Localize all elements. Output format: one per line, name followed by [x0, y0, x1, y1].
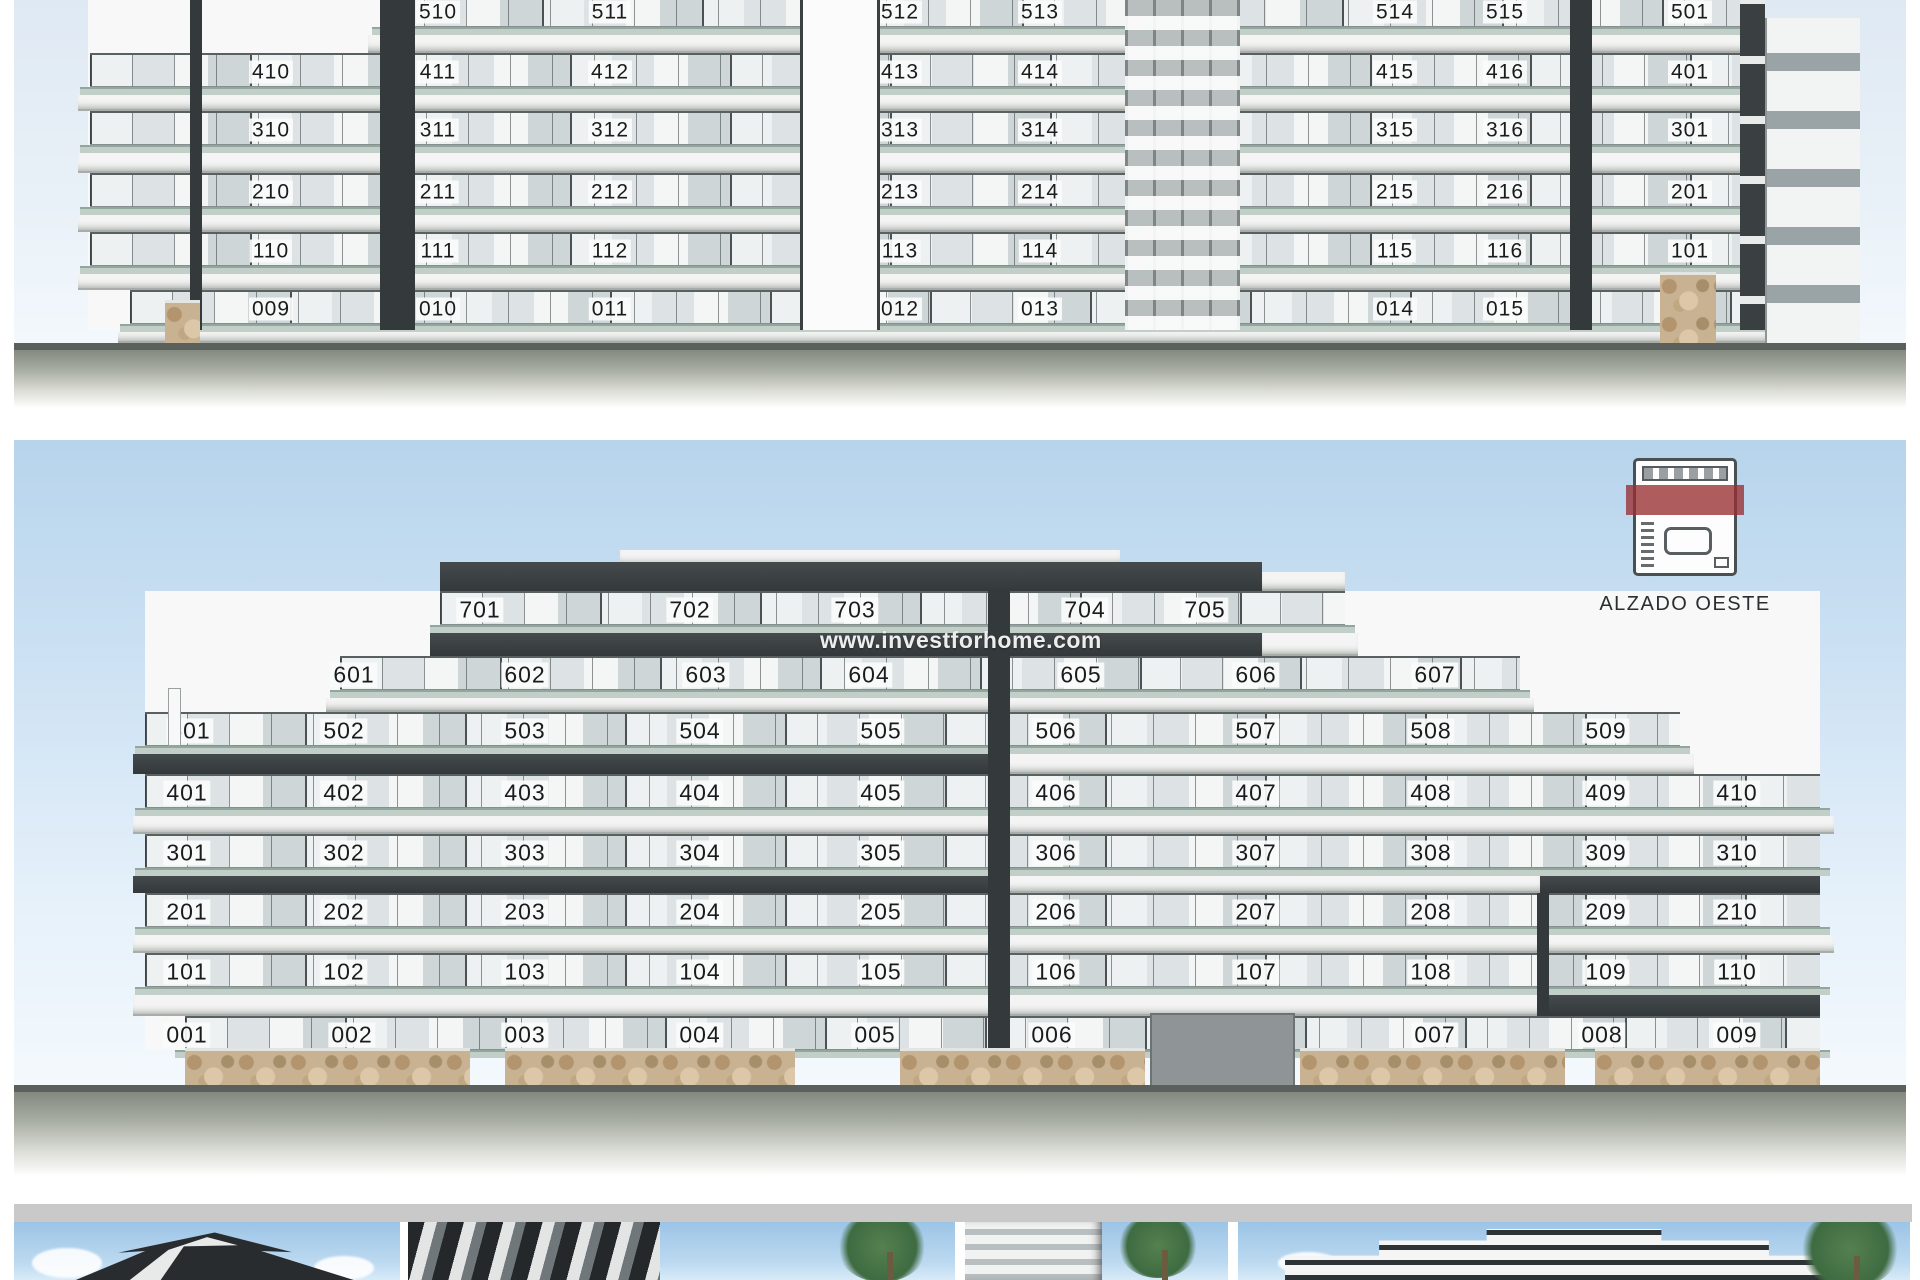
unit-number-label: 604	[845, 663, 892, 688]
unit-number-label: 111	[418, 240, 459, 263]
balcony-slab	[78, 95, 1779, 111]
stone-base	[1595, 1048, 1820, 1088]
unit-number-label: 407	[1232, 781, 1279, 806]
unit-number-label: 212	[588, 181, 632, 204]
unit-number-label: 504	[676, 719, 723, 744]
unit-number-label: 009	[1713, 1023, 1760, 1048]
unit-number-label: 012	[878, 298, 922, 321]
unit-number-label: 401	[163, 781, 210, 806]
thumbnail-divider-band	[14, 1204, 1912, 1222]
balcony-rail	[80, 266, 1775, 274]
unit-number-label: 306	[1032, 841, 1079, 866]
stone-pier	[1660, 272, 1716, 343]
architectural-elevation-sheet: 5105115125135145155014104114124134144154…	[0, 0, 1920, 1280]
unit-number-label: 112	[589, 240, 631, 263]
unit-number-label: 214	[1018, 181, 1062, 204]
unit-number-label: 406	[1032, 781, 1079, 806]
dark-fascia-band	[1540, 876, 1820, 893]
balcony-slab	[1262, 633, 1358, 656]
balcony-rail	[120, 324, 1775, 332]
block-pier	[1537, 893, 1549, 1016]
right-annex	[1765, 18, 1860, 343]
unit-number-label: 508	[1407, 719, 1454, 744]
unit-number-label: 301	[163, 841, 210, 866]
unit-number-label: 108	[1407, 960, 1454, 985]
unit-number-label: 311	[417, 119, 459, 142]
balcony-slab	[326, 698, 1534, 712]
unit-number-label: 110	[250, 240, 292, 263]
unit-number-label: 703	[831, 598, 878, 623]
unit-number-label: 110	[1714, 960, 1760, 985]
stone-base	[185, 1048, 470, 1088]
unit-number-label: 008	[1578, 1023, 1625, 1048]
unit-number-label: 109	[1582, 960, 1629, 985]
window-strip	[145, 953, 1820, 987]
balcony-rail	[135, 927, 1830, 935]
balcony-rail	[135, 868, 1830, 876]
unit-number-label: 216	[1483, 181, 1527, 204]
unit-number-label: 113	[879, 240, 921, 263]
unit-number-label: 408	[1407, 781, 1454, 806]
top-stair-tower-wall	[90, 0, 380, 54]
service-core	[1125, 0, 1240, 330]
balcony-slab	[78, 274, 1779, 290]
dark-pier	[380, 0, 415, 330]
unit-number-label: 314	[1018, 119, 1062, 142]
window-strip	[145, 893, 1820, 927]
dark-pier	[1570, 0, 1592, 330]
roof-fascia	[440, 562, 1262, 592]
balcony-rail	[330, 690, 1530, 698]
unit-number-label: 503	[501, 719, 548, 744]
thumbnail-render-3[interactable]	[965, 1222, 1228, 1280]
thumbnail-render-1[interactable]	[14, 1222, 400, 1280]
unit-number-label: 303	[501, 841, 548, 866]
unit-number-label: 210	[249, 181, 293, 204]
palm-tree	[837, 1222, 927, 1280]
balcony-rail	[80, 145, 1775, 153]
unit-number-label: 209	[1582, 900, 1629, 925]
unit-number-label: 405	[857, 781, 904, 806]
unit-number-label: 514	[1373, 1, 1417, 24]
thumbnail-render-4[interactable]	[1238, 1222, 1910, 1280]
window-strip	[145, 834, 1820, 868]
balcony-closeup	[408, 1222, 660, 1280]
stone-base	[505, 1048, 795, 1088]
unit-number-label: 415	[1373, 61, 1417, 84]
unit-number-label: 410	[249, 61, 293, 84]
balcony-slab	[78, 153, 1779, 173]
unit-number-label: 704	[1061, 598, 1108, 623]
plan-balcony-teeth	[1642, 466, 1728, 481]
balcony-slab	[133, 995, 1540, 1016]
stair-core	[800, 0, 880, 330]
unit-number-label: 301	[1668, 119, 1712, 142]
unit-number-label: 201	[1668, 181, 1712, 204]
unit-number-label: 402	[320, 781, 367, 806]
unit-number-label: 607	[1411, 663, 1458, 688]
unit-number-label: 104	[676, 960, 723, 985]
unit-number-label: 003	[501, 1023, 548, 1048]
unit-number-label: 102	[320, 960, 367, 985]
balcony-slab	[133, 935, 1540, 953]
stone-pier	[165, 300, 200, 343]
unit-number-label: 213	[878, 181, 922, 204]
window-strip	[145, 774, 1820, 808]
unit-number-label: 410	[1713, 781, 1760, 806]
unit-number-label: 412	[588, 61, 632, 84]
earth-gradient	[14, 1092, 1906, 1176]
building-facade	[965, 1222, 1102, 1280]
central-pier	[988, 591, 1010, 1050]
unit-number-label: 307	[1232, 841, 1279, 866]
balcony-rail	[135, 987, 1830, 995]
unit-number-label: 511	[589, 1, 631, 24]
unit-number-label: 011	[589, 298, 631, 321]
balcony-rail	[135, 746, 1690, 754]
unit-number-label: 204	[676, 900, 723, 925]
palm-trunk	[1162, 1250, 1168, 1280]
unit-number-label: 201	[163, 900, 210, 925]
dark-fascia-band	[133, 876, 1000, 893]
unit-number-label: 206	[1032, 900, 1079, 925]
unit-number-label: 502	[320, 719, 367, 744]
unit-number-label: 207	[1232, 900, 1279, 925]
unit-number-label: 304	[676, 841, 723, 866]
unit-number-label: 215	[1373, 181, 1417, 204]
unit-number-label: 007	[1411, 1023, 1458, 1048]
stone-base	[900, 1048, 1145, 1088]
unit-number-label: 310	[249, 119, 293, 142]
unit-number-label: 105	[857, 960, 904, 985]
unit-number-label: 309	[1582, 841, 1629, 866]
unit-number-label: 310	[1713, 841, 1760, 866]
balcony-slab	[78, 215, 1779, 232]
balcony-slab	[133, 816, 1834, 834]
west-facade-plan-icon	[1633, 458, 1737, 576]
unit-number-label: 210	[1713, 900, 1760, 925]
unit-number-label: 009	[249, 298, 293, 321]
unit-number-label: 603	[682, 663, 729, 688]
unit-number-label: 404	[676, 781, 723, 806]
stone-base	[1300, 1048, 1565, 1088]
plan-small-box	[1714, 557, 1729, 568]
dark-fascia-band	[1540, 995, 1820, 1016]
ground-line	[14, 1085, 1906, 1092]
unit-number-label: 015	[1483, 298, 1527, 321]
dark-fascia-band	[133, 754, 1000, 774]
unit-number-label: 411	[417, 61, 459, 84]
unit-number-label: 602	[501, 663, 548, 688]
highlighted-west-facade-band	[1626, 485, 1744, 515]
unit-number-label: 403	[501, 781, 548, 806]
balcony-rail	[80, 207, 1775, 215]
unit-number-label: 409	[1582, 781, 1629, 806]
palm-trunk	[887, 1252, 893, 1280]
balcony-slab	[1000, 876, 1540, 893]
unit-number-label: 106	[1032, 960, 1079, 985]
unit-number-label: 509	[1582, 719, 1629, 744]
unit-number-label: 701	[456, 598, 503, 623]
unit-number-label: 506	[1032, 719, 1079, 744]
unit-number-label: 401	[1668, 61, 1712, 84]
unit-number-label: 416	[1483, 61, 1527, 84]
unit-number-label: 702	[666, 598, 713, 623]
unit-number-label: 006	[1028, 1023, 1075, 1048]
chimney	[168, 688, 181, 746]
unit-number-label: 107	[1232, 960, 1279, 985]
balcony-rail	[135, 808, 1830, 816]
unit-number-label: 510	[416, 1, 460, 24]
plan-stairs	[1641, 521, 1654, 567]
watermark: www.investforhome.com	[820, 627, 1110, 654]
balcony-slab	[368, 35, 1779, 53]
roof-parapet	[1262, 572, 1345, 591]
palm-tree	[1800, 1222, 1900, 1280]
unit-number-label: 205	[857, 900, 904, 925]
unit-number-label: 305	[857, 841, 904, 866]
unit-number-label: 312	[588, 119, 632, 142]
unit-number-label: 313	[878, 119, 922, 142]
unit-number-label: 413	[878, 61, 922, 84]
unit-number-label: 605	[1057, 663, 1104, 688]
unit-number-label: 513	[1018, 1, 1062, 24]
palm-trunk	[1854, 1256, 1860, 1280]
unit-number-label: 505	[857, 719, 904, 744]
unit-number-label: 507	[1232, 719, 1279, 744]
plan-room-outline	[1664, 527, 1712, 555]
unit-number-label: 302	[320, 841, 367, 866]
unit-number-label: 512	[878, 1, 922, 24]
unit-number-label: 001	[163, 1023, 210, 1048]
unit-number-label: 606	[1232, 663, 1279, 688]
unit-number-label: 013	[1018, 298, 1062, 321]
unit-number-label: 203	[501, 900, 548, 925]
unit-number-label: 101	[163, 960, 210, 985]
unit-number-label: 005	[851, 1023, 898, 1048]
balcony-slab	[1540, 935, 1834, 953]
garage-door	[1150, 1013, 1295, 1088]
unit-number-label: 114	[1019, 240, 1061, 263]
unit-number-label: 501	[1668, 1, 1712, 24]
balcony-slab	[118, 332, 1765, 343]
checker-pier	[1740, 0, 1765, 330]
unit-number-label: 101	[1668, 240, 1712, 263]
unit-number-label: 705	[1181, 598, 1228, 623]
unit-number-label: 115	[1374, 240, 1416, 263]
unit-number-label: 414	[1018, 61, 1062, 84]
unit-number-label: 004	[676, 1023, 723, 1048]
unit-number-label: 208	[1407, 900, 1454, 925]
unit-number-label: 515	[1483, 1, 1527, 24]
unit-number-label: 014	[1373, 298, 1417, 321]
palm-tree	[1118, 1222, 1198, 1278]
unit-number-label: 010	[416, 298, 460, 321]
thumbnail-render-2[interactable]	[408, 1222, 955, 1280]
earth-gradient	[14, 350, 1906, 408]
unit-number-label: 211	[417, 181, 459, 204]
dark-pier	[190, 0, 202, 330]
unit-number-label: 601	[330, 663, 377, 688]
ground-line	[14, 343, 1906, 350]
unit-number-label: 316	[1483, 119, 1527, 142]
unit-number-label: 315	[1373, 119, 1417, 142]
balcony-rail	[80, 87, 1775, 95]
balcony-slab	[1000, 754, 1694, 774]
unit-number-label: 116	[1484, 240, 1526, 263]
unit-number-label: 308	[1407, 841, 1454, 866]
unit-number-label: 202	[320, 900, 367, 925]
balcony-rail	[372, 27, 1775, 35]
unit-number-label: 002	[328, 1023, 375, 1048]
elevation-title: ALZADO OESTE	[1545, 593, 1825, 616]
unit-number-label: 103	[501, 960, 548, 985]
